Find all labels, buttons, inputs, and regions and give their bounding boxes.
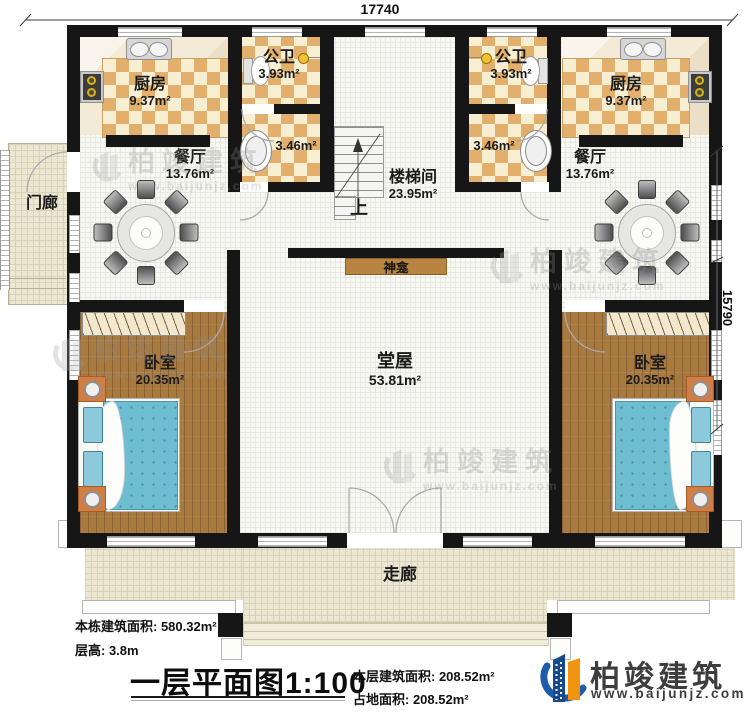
ground-area: 占地面积: 208.52m² <box>353 689 469 708</box>
washbasin-inner <box>525 136 547 166</box>
room-name: 公卫 <box>495 49 527 67</box>
dining-table-left <box>91 178 199 286</box>
shrine-shelf: 神龛 <box>345 258 447 275</box>
room-label-bedroom-left: 卧室 20.35m² <box>113 355 207 388</box>
room-label-bath-right: 公卫 3.93m² <box>474 49 548 82</box>
room-name: 卧室 <box>144 355 176 373</box>
stove-burner <box>695 88 704 97</box>
window-top-1 <box>118 27 182 37</box>
room-label-porch: 门廊 <box>15 195 69 213</box>
corridor-steps <box>243 622 549 646</box>
room-label-kitchen-left: 厨房 9.37m² <box>100 76 200 109</box>
table-top <box>618 204 676 262</box>
room-name: 楼梯间 <box>389 169 437 187</box>
room-area: 3.93m² <box>490 67 531 82</box>
wall-kitchenL-bottom <box>106 135 210 147</box>
window-left-1 <box>69 215 80 253</box>
wall-bathL-divider <box>274 104 320 114</box>
porch-door-opening <box>67 152 80 192</box>
bedroomR-door-opening <box>565 300 605 312</box>
pillow <box>83 407 103 443</box>
room-label-hall: 堂屋 53.81m² <box>348 351 442 388</box>
chair <box>94 224 113 242</box>
room-label-bedroom-right: 卧室 20.35m² <box>603 355 697 388</box>
nightstand <box>686 486 714 512</box>
sink-basin <box>642 41 663 58</box>
column-right <box>547 613 572 637</box>
chair <box>163 250 189 276</box>
room-area: 9.37m² <box>129 94 170 109</box>
wall-bedroomL-top <box>80 300 184 312</box>
floor-area: 本层建筑面积: 208.52m² <box>353 666 495 685</box>
window-right-3 <box>711 330 722 380</box>
window-top-3 <box>365 27 425 37</box>
room-label-dining-left: 餐厅 13.76m² <box>148 149 232 182</box>
wardrobe-left <box>82 312 186 336</box>
logo-website: www.baijunjz.com <box>591 686 746 701</box>
chair <box>638 180 656 199</box>
window-top-5 <box>607 27 671 37</box>
chair <box>137 180 155 199</box>
pillow <box>83 451 103 487</box>
chair <box>664 189 690 215</box>
room-name: 餐厅 <box>574 149 606 167</box>
chair <box>681 224 700 242</box>
chair <box>638 266 656 285</box>
room-label-corridor: 走廊 <box>368 565 432 585</box>
dimension-tick <box>727 14 738 26</box>
room-label-stairwell: 楼梯间 23.95m² <box>371 169 455 202</box>
sink-basin <box>129 41 150 58</box>
room-name: 门廊 <box>26 195 58 213</box>
window-bottom-3 <box>463 536 532 547</box>
washroomR-door-opening <box>521 182 549 192</box>
pillow <box>691 451 711 487</box>
washroomL-door-opening <box>240 182 268 192</box>
sink-basin <box>148 41 169 58</box>
stove-right <box>688 71 712 103</box>
room-label-bath-left: 公卫 3.93m² <box>242 49 316 82</box>
chair <box>163 189 189 215</box>
washbasin-inner <box>245 136 267 166</box>
wall-kitchenR-bottom <box>579 135 683 147</box>
nightstand <box>78 376 106 402</box>
porch-floor <box>8 143 70 305</box>
corridor-step-cap-right <box>557 600 710 614</box>
table-top <box>117 204 175 262</box>
kitchen-sink-left <box>126 38 172 60</box>
logo-icon <box>539 648 587 710</box>
window-right-2 <box>711 240 722 262</box>
wall-bedroomR-top <box>605 300 710 312</box>
stove-burner <box>87 76 96 85</box>
window-right-1 <box>711 185 722 220</box>
stove-burner <box>695 76 704 85</box>
room-area: 13.76m² <box>566 167 614 182</box>
bathL-door-opening <box>242 104 274 114</box>
pillow <box>691 407 711 443</box>
room-name: 厨房 <box>610 76 642 94</box>
chair <box>180 224 199 242</box>
bathR-door-opening <box>515 104 547 114</box>
window-top-2 <box>252 27 302 37</box>
room-name: 卧室 <box>634 355 666 373</box>
title-underline-2 <box>131 700 345 701</box>
room-area: 3.46m² <box>275 139 316 154</box>
hall-door-opening <box>347 533 443 548</box>
column-left <box>218 613 243 637</box>
corridor-step-cap-left <box>82 600 236 614</box>
floor-height: 层高: 3.8m <box>75 640 139 659</box>
window-left-2 <box>69 273 80 302</box>
room-area: 3.46m² <box>473 139 514 154</box>
dining-table-right <box>592 178 700 286</box>
wall-bathR-divider <box>469 104 515 114</box>
bedroomL-door-opening <box>184 300 224 312</box>
room-label-dining-right: 餐厅 13.76m² <box>548 149 632 182</box>
shrine-label: 神龛 <box>383 257 408 276</box>
chair <box>137 266 155 285</box>
wall-hall-left <box>227 250 240 533</box>
window-bottom-4 <box>595 536 685 547</box>
room-area: 20.35m² <box>136 373 184 388</box>
room-label-washroom-left: 3.46m² <box>268 139 324 154</box>
room-name: 走廊 <box>383 565 417 585</box>
porch-window <box>0 150 10 290</box>
window-bottom-1 <box>107 536 195 547</box>
room-area: 3.93m² <box>258 67 299 82</box>
wall-bathL-stair <box>320 33 334 192</box>
room-area: 9.37m² <box>605 94 646 109</box>
chair <box>664 250 690 276</box>
stair-up-label: 上 <box>350 194 368 220</box>
chair <box>595 224 614 242</box>
room-name: 厨房 <box>134 76 166 94</box>
wardrobe-right <box>606 312 710 336</box>
room-area: 23.95m² <box>389 187 437 202</box>
nightstand <box>78 486 106 512</box>
room-name: 餐厅 <box>174 149 206 167</box>
room-name: 公卫 <box>263 49 295 67</box>
kitchen-sink-right <box>620 38 666 60</box>
dimension-tick <box>20 14 31 26</box>
room-label-kitchen-right: 厨房 9.37m² <box>576 76 676 109</box>
floor-plan-sheet: 神龛 <box>0 0 750 715</box>
room-area: 20.35m² <box>626 373 674 388</box>
porch-steps <box>10 288 66 289</box>
dimension-width: 17740 <box>318 1 442 17</box>
room-name: 堂屋 <box>377 351 413 372</box>
title-underline <box>131 696 345 698</box>
wall-bathR-stair <box>455 33 469 192</box>
stove-burner <box>87 88 96 97</box>
total-building-area: 本栋建筑面积: 580.32m² <box>75 616 217 635</box>
wall-hall-right <box>549 250 562 533</box>
sink-basin <box>623 41 644 58</box>
room-label-washroom-right: 3.46m² <box>466 139 522 154</box>
column-base-left <box>221 638 242 660</box>
room-area: 53.81m² <box>369 372 421 388</box>
window-left-3 <box>69 330 80 380</box>
window-bottom-2 <box>258 536 327 547</box>
window-top-4 <box>487 27 537 37</box>
room-area: 13.76m² <box>166 167 214 182</box>
dimension-depth: 15790 <box>720 283 735 333</box>
porch-steps <box>10 278 66 279</box>
